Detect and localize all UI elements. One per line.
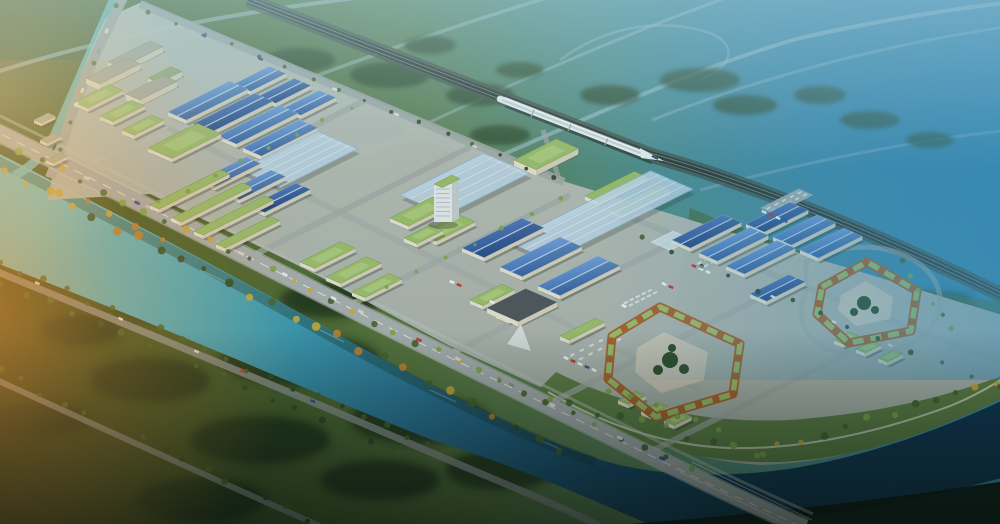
aerial-rendering — [0, 0, 1000, 524]
aerial-rendering-stage — [0, 0, 1000, 524]
lens-flare-soft — [0, 0, 260, 300]
